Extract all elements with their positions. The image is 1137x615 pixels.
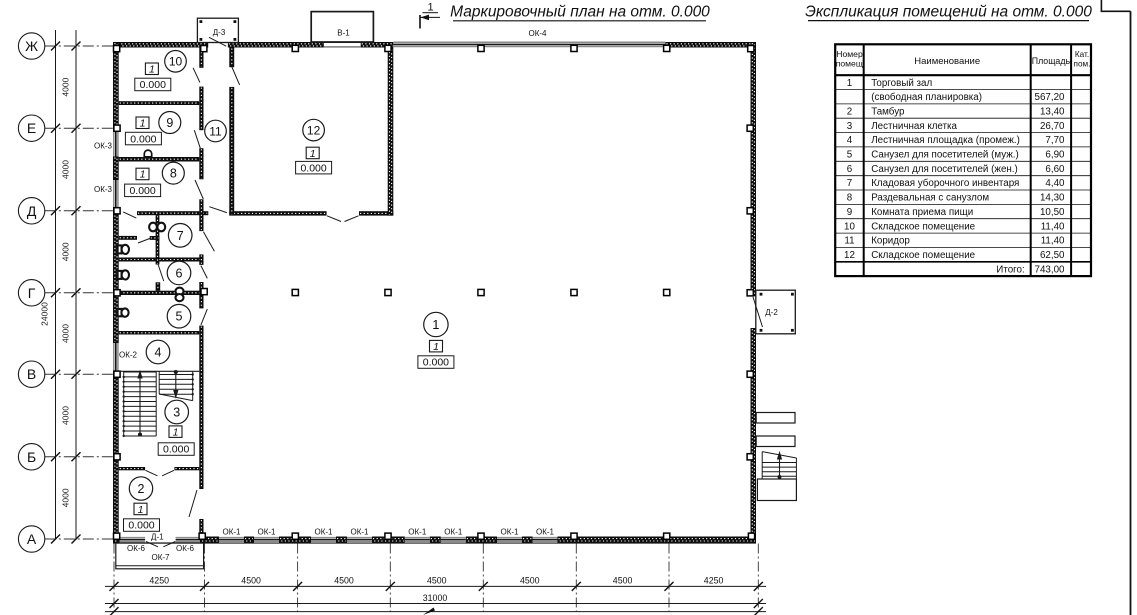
svg-text:ОК-3: ОК-3 [94, 185, 113, 194]
svg-text:6: 6 [176, 266, 183, 280]
svg-text:4000: 4000 [61, 488, 71, 507]
svg-text:4000: 4000 [61, 406, 71, 425]
svg-text:0.000: 0.000 [128, 520, 154, 532]
svg-text:ОК-6: ОК-6 [127, 544, 146, 553]
svg-text:12: 12 [844, 250, 855, 261]
svg-text:В-1: В-1 [337, 28, 350, 37]
svg-text:4500: 4500 [520, 575, 540, 585]
svg-text:11,40: 11,40 [1041, 236, 1065, 247]
svg-text:7,70: 7,70 [1045, 135, 1065, 146]
svg-text:ОК-6: ОК-6 [176, 544, 195, 553]
svg-text:0.000: 0.000 [423, 357, 449, 369]
svg-text:ОК-3: ОК-3 [94, 142, 113, 151]
svg-text:Лестничная клетка: Лестничная клетка [871, 121, 957, 132]
svg-text:Д-2: Д-2 [765, 308, 778, 317]
svg-text:Складское помещение: Складское помещение [871, 250, 975, 261]
svg-text:4: 4 [155, 346, 162, 360]
svg-text:743,00: 743,00 [1035, 264, 1066, 275]
svg-text:6,90: 6,90 [1045, 150, 1065, 161]
svg-text:1: 1 [138, 504, 144, 516]
svg-text:5: 5 [847, 150, 853, 161]
svg-text:Кат.: Кат. [1075, 50, 1089, 59]
svg-text:0.000: 0.000 [300, 162, 326, 174]
svg-text:10: 10 [844, 221, 855, 232]
svg-text:9: 9 [166, 116, 173, 130]
svg-text:Д: Д [27, 203, 37, 219]
svg-text:(свободная планировка): (свободная планировка) [871, 92, 982, 103]
svg-text:4: 4 [847, 135, 853, 146]
svg-text:11: 11 [209, 124, 222, 138]
svg-text:10,50: 10,50 [1040, 207, 1065, 218]
svg-text:1: 1 [432, 317, 439, 332]
svg-text:Д-1: Д-1 [151, 533, 164, 542]
svg-text:1: 1 [140, 118, 146, 130]
svg-text:7: 7 [847, 178, 852, 189]
svg-text:Торговый зал: Торговый зал [871, 78, 932, 89]
svg-text:4250: 4250 [704, 575, 724, 585]
svg-text:Итого:: Итого: [996, 264, 1024, 275]
svg-text:ОК-1: ОК-1 [444, 527, 463, 536]
svg-text:4000: 4000 [61, 77, 71, 96]
svg-text:26,70: 26,70 [1040, 121, 1065, 132]
svg-text:ОК-2: ОК-2 [119, 350, 138, 359]
svg-text:Тамбур: Тамбур [871, 107, 905, 118]
svg-text:8: 8 [170, 167, 177, 181]
svg-text:ОК-1: ОК-1 [315, 527, 334, 536]
svg-text:А: А [27, 531, 37, 547]
svg-text:Г: Г [28, 285, 36, 301]
svg-text:9: 9 [847, 207, 852, 218]
svg-text:Санузел для посетителей (жен.): Санузел для посетителей (жен.) [871, 164, 1018, 175]
svg-text:ОК-1: ОК-1 [408, 527, 427, 536]
svg-text:4500: 4500 [241, 575, 261, 585]
svg-text:3: 3 [847, 121, 853, 132]
svg-text:0.000: 0.000 [163, 444, 189, 456]
svg-text:Ж: Ж [25, 38, 38, 54]
svg-text:14,30: 14,30 [1040, 193, 1065, 204]
svg-text:2: 2 [847, 107, 852, 118]
svg-text:4500: 4500 [334, 575, 354, 585]
svg-text:31000: 31000 [423, 593, 448, 603]
svg-text:11,40: 11,40 [1041, 221, 1065, 232]
svg-text:Наименование: Наименование [914, 56, 980, 67]
svg-text:24000: 24000 [40, 302, 50, 326]
svg-text:ОК-4: ОК-4 [529, 29, 548, 38]
svg-text:0.000: 0.000 [129, 185, 155, 197]
svg-text:10: 10 [169, 55, 183, 69]
svg-text:567,20: 567,20 [1035, 92, 1066, 103]
svg-text:0.000: 0.000 [140, 79, 166, 91]
svg-text:ОК-1: ОК-1 [536, 527, 555, 536]
svg-text:2: 2 [138, 482, 145, 496]
svg-text:ОК-1: ОК-1 [258, 527, 277, 536]
svg-text:Кладовая уборочного инвентаря: Кладовая уборочного инвентаря [871, 178, 1019, 189]
svg-text:6,60: 6,60 [1045, 164, 1065, 175]
svg-text:4000: 4000 [61, 160, 71, 179]
svg-text:1: 1 [173, 426, 179, 438]
svg-text:ОК-7: ОК-7 [152, 553, 171, 562]
svg-text:Д-3: Д-3 [213, 28, 226, 37]
svg-text:8: 8 [847, 193, 853, 204]
svg-text:пом.: пом. [1074, 60, 1091, 69]
svg-text:В: В [27, 366, 36, 382]
svg-text:1: 1 [433, 341, 439, 353]
svg-text:Экспликация помещений на отм.: Экспликация помещений на отм. 0.000 [805, 3, 1092, 20]
svg-text:Площадь: Площадь [1032, 56, 1071, 66]
svg-text:0.000: 0.000 [130, 133, 156, 145]
svg-text:1: 1 [140, 169, 146, 181]
svg-text:3: 3 [173, 406, 180, 420]
svg-text:11: 11 [844, 236, 854, 247]
svg-text:1: 1 [847, 78, 852, 89]
svg-text:62,50: 62,50 [1040, 250, 1065, 261]
svg-text:Е: Е [27, 120, 36, 136]
svg-text:13,40: 13,40 [1040, 107, 1065, 118]
svg-text:4000: 4000 [61, 324, 71, 343]
svg-text:12: 12 [307, 123, 321, 137]
svg-text:4250: 4250 [149, 575, 169, 585]
svg-text:ОК-1: ОК-1 [501, 527, 520, 536]
svg-text:Санузел для посетителей (муж.): Санузел для посетителей (муж.) [871, 150, 1019, 161]
svg-text:ОК-1: ОК-1 [223, 527, 242, 536]
svg-text:4,40: 4,40 [1045, 178, 1065, 189]
svg-text:Комната приема пищи: Комната приема пищи [871, 207, 973, 218]
svg-text:1: 1 [310, 148, 316, 160]
svg-text:Лестничная площадка (промеж.): Лестничная площадка (промеж.) [871, 135, 1020, 146]
svg-text:Складское помещение: Складское помещение [871, 221, 975, 232]
svg-text:Номер: Номер [836, 49, 863, 59]
svg-text:7: 7 [177, 229, 184, 243]
svg-text:Маркировочный план на отм. 0.0: Маркировочный план на отм. 0.000 [450, 4, 710, 21]
svg-text:1: 1 [149, 64, 155, 76]
svg-text:6: 6 [847, 164, 853, 175]
svg-text:4000: 4000 [61, 242, 71, 261]
svg-text:1: 1 [427, 2, 433, 14]
svg-text:Коридор: Коридор [871, 236, 910, 247]
svg-text:ОК-1: ОК-1 [351, 527, 370, 536]
svg-text:помещ.: помещ. [836, 59, 866, 69]
svg-text:Б: Б [27, 449, 36, 465]
svg-text:4500: 4500 [613, 575, 633, 585]
svg-text:4500: 4500 [427, 575, 447, 585]
svg-text:Раздевальная с санузлом: Раздевальная с санузлом [871, 193, 989, 204]
svg-text:5: 5 [176, 310, 183, 324]
